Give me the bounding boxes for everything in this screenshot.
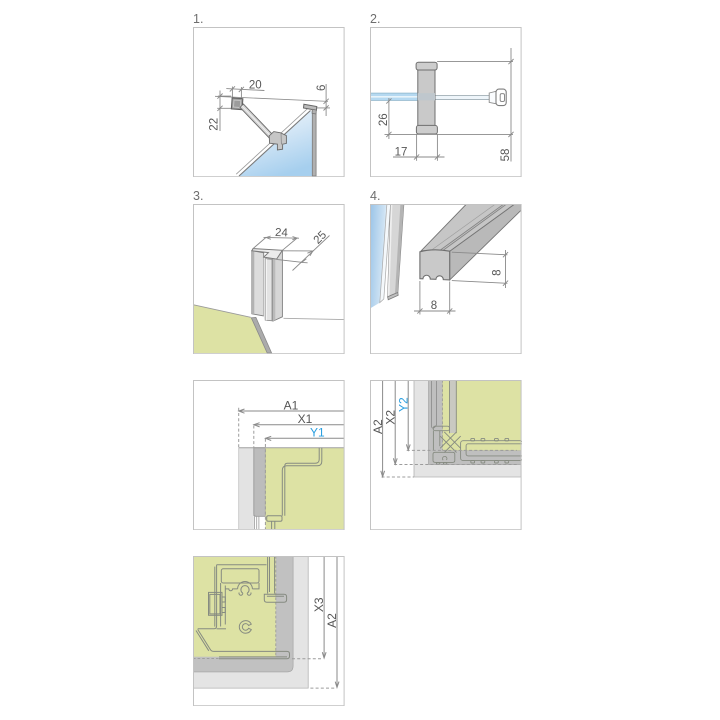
svg-text:Y1: Y1 <box>310 426 325 440</box>
svg-text:A2: A2 <box>325 613 339 628</box>
svg-text:58: 58 <box>500 149 512 162</box>
svg-text:X3: X3 <box>312 597 326 612</box>
svg-text:X2: X2 <box>384 410 398 425</box>
svg-text:A1: A1 <box>284 398 299 412</box>
svg-text:8: 8 <box>491 269 503 275</box>
svg-text:X1: X1 <box>298 412 313 426</box>
svg-text:24: 24 <box>275 227 289 240</box>
svg-text:17: 17 <box>395 146 408 158</box>
svg-text:20: 20 <box>249 79 262 91</box>
svg-text:6: 6 <box>316 85 328 91</box>
svg-text:8: 8 <box>431 300 437 312</box>
svg-text:25: 25 <box>312 229 330 247</box>
svg-text:26: 26 <box>378 113 390 126</box>
svg-text:Y2: Y2 <box>397 397 411 412</box>
svg-text:22: 22 <box>208 118 220 131</box>
